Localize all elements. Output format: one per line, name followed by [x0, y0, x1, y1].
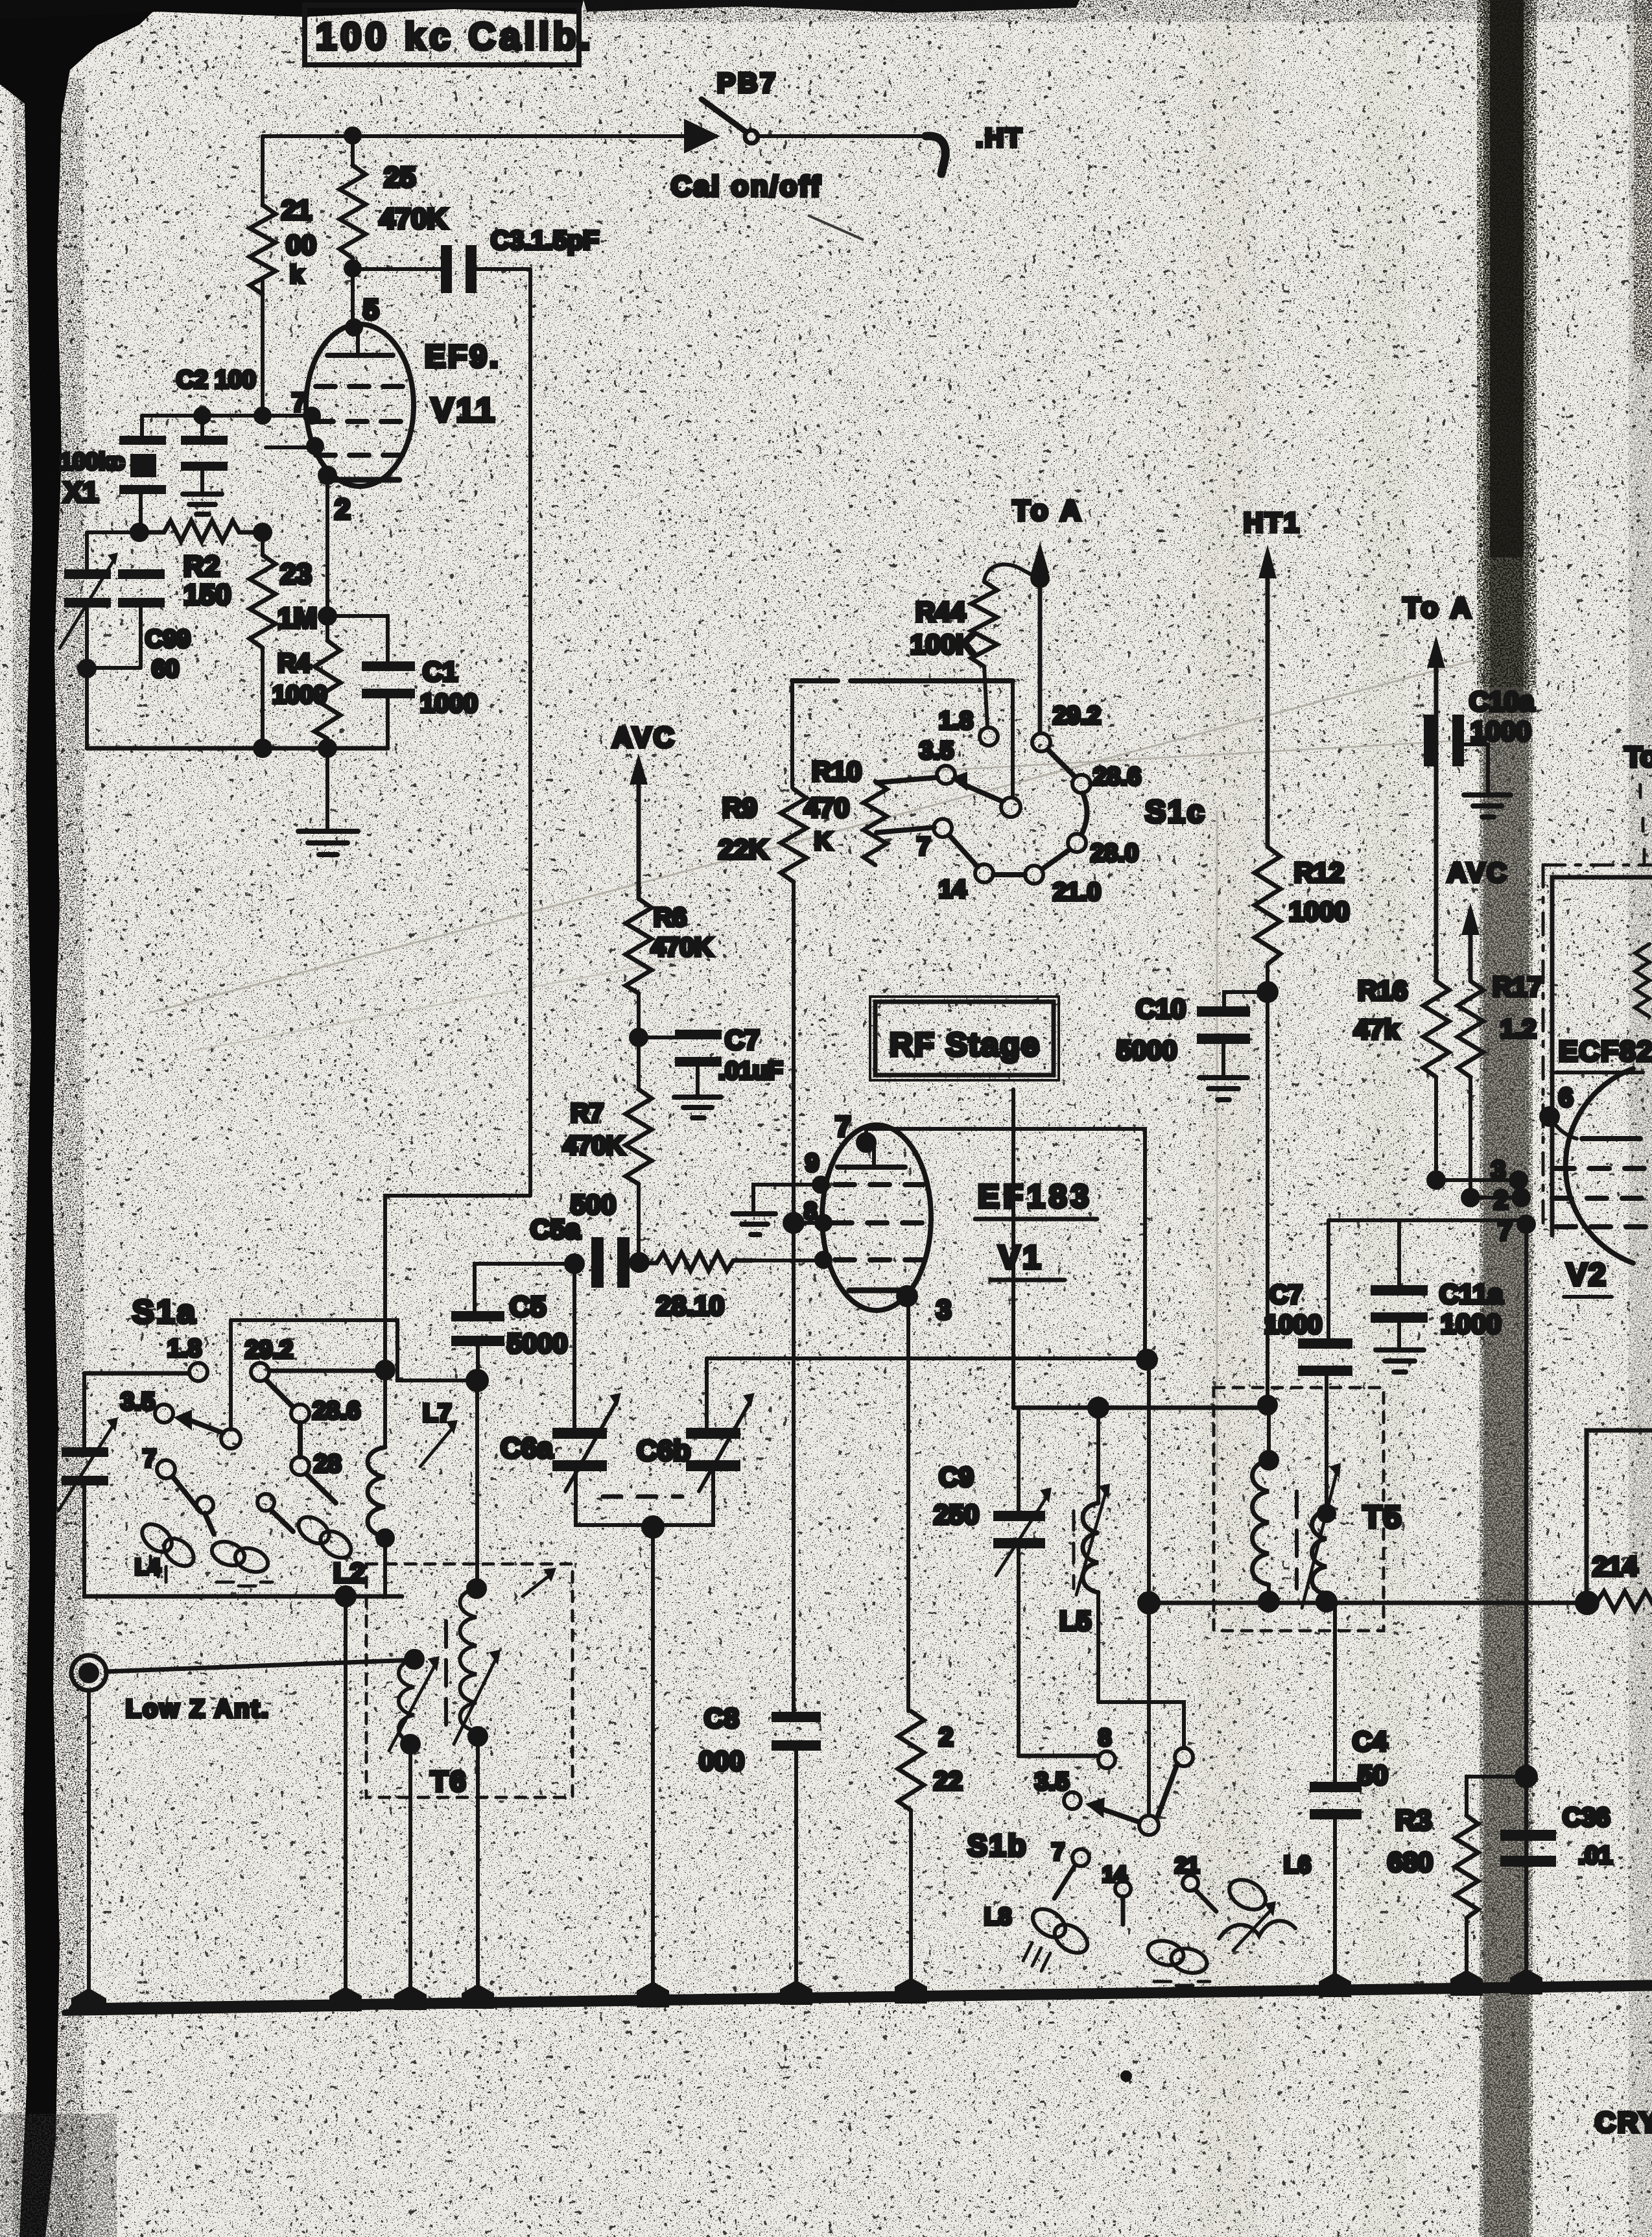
svg-text:5000: 5000 [507, 1328, 567, 1358]
svg-text:EF9.: EF9. [425, 340, 501, 374]
svg-text:29.2: 29.2 [245, 1336, 293, 1364]
svg-text:3.5: 3.5 [919, 737, 954, 764]
svg-text:R44: R44 [915, 597, 966, 627]
svg-text:100K: 100K [910, 629, 975, 659]
svg-text:28: 28 [314, 1450, 341, 1478]
svg-text:7: 7 [1052, 1838, 1065, 1865]
svg-text:C36: C36 [1563, 1803, 1610, 1832]
svg-text:C99: C99 [145, 626, 191, 653]
svg-text:T5: T5 [1363, 1500, 1403, 1535]
svg-text:C8: C8 [704, 1703, 739, 1733]
svg-text:L2: L2 [333, 1557, 365, 1588]
svg-text:RF Stage: RF Stage [890, 1026, 1041, 1063]
svg-text:60: 60 [152, 656, 179, 683]
svg-text:28.0: 28.0 [1091, 840, 1139, 867]
svg-text:29.2: 29.2 [1053, 702, 1101, 729]
svg-text:21: 21 [1175, 1853, 1199, 1878]
svg-text:Low Z Ant.: Low Z Ant. [126, 1696, 270, 1723]
svg-text:47k: 47k [1354, 1014, 1400, 1045]
svg-text:C6b: C6b [637, 1435, 690, 1467]
svg-text:V11: V11 [431, 392, 497, 429]
svg-text:R7: R7 [571, 1099, 604, 1128]
svg-text:8: 8 [1098, 1724, 1111, 1751]
svg-text:50: 50 [1358, 1760, 1388, 1790]
svg-text:470K: 470K [651, 933, 713, 962]
svg-text:S1a: S1a [132, 1294, 198, 1330]
svg-text:8: 8 [804, 1198, 817, 1224]
svg-text:00: 00 [286, 230, 316, 260]
svg-text:2: 2 [1494, 1186, 1508, 1214]
svg-text:1000: 1000 [420, 689, 478, 718]
svg-text:C10a: C10a [1469, 686, 1535, 716]
svg-text:T6: T6 [431, 1766, 467, 1797]
svg-text:23: 23 [280, 558, 312, 590]
svg-text:1M: 1M [277, 602, 317, 634]
svg-text:V1: V1 [998, 1239, 1043, 1275]
svg-text:EF183: EF183 [978, 1178, 1092, 1214]
svg-text:R2: R2 [183, 550, 220, 582]
svg-text:L8: L8 [984, 1903, 1011, 1930]
svg-text:1.8: 1.8 [939, 707, 973, 735]
svg-text:5000: 5000 [1116, 1035, 1177, 1065]
svg-text:PB7: PB7 [717, 67, 778, 98]
svg-text:R17: R17 [1493, 971, 1542, 1002]
svg-text:470K: 470K [379, 203, 447, 235]
svg-text:R4: R4 [277, 649, 311, 678]
svg-text:25: 25 [384, 161, 416, 193]
svg-text:HT1: HT1 [1244, 507, 1301, 538]
svg-text:R12: R12 [1294, 857, 1344, 888]
svg-text:150: 150 [183, 579, 231, 611]
svg-text:k: k [290, 261, 304, 289]
svg-text:28.10: 28.10 [656, 1290, 724, 1321]
svg-text:000: 000 [699, 1746, 744, 1776]
svg-text:.01: .01 [1578, 1842, 1612, 1869]
svg-text:1000: 1000 [1470, 716, 1531, 746]
svg-text:1000: 1000 [1264, 1310, 1322, 1339]
svg-text:7: 7 [143, 1445, 156, 1473]
svg-text:14: 14 [939, 876, 966, 903]
svg-text:6: 6 [1559, 1083, 1573, 1112]
svg-text:C1: C1 [423, 656, 458, 687]
svg-text:3.5: 3.5 [1035, 1768, 1069, 1795]
svg-text:28.6: 28.6 [313, 1397, 360, 1425]
svg-text:5: 5 [363, 294, 379, 325]
svg-text:680: 680 [1387, 1847, 1433, 1877]
svg-text:C11a: C11a [1439, 1279, 1504, 1309]
svg-text:CRY: CRY [1595, 2107, 1652, 2138]
svg-text:470K: 470K [563, 1131, 625, 1160]
svg-text:14: 14 [1102, 1862, 1127, 1887]
svg-text:S1c: S1c [1145, 795, 1206, 829]
svg-text:470: 470 [804, 792, 849, 823]
svg-text:L5: L5 [1059, 1605, 1091, 1636]
svg-text:21: 21 [281, 195, 312, 225]
svg-text:.01uF: .01uF [718, 1058, 783, 1085]
svg-text:R10: R10 [812, 756, 862, 787]
svg-text:To A: To A [1403, 592, 1474, 624]
svg-text:1000: 1000 [272, 681, 327, 709]
svg-text:C5a: C5a [530, 1214, 581, 1244]
svg-text:Cal on/off: Cal on/off [671, 171, 822, 202]
svg-text:ECF82: ECF82 [1559, 1036, 1652, 1067]
svg-text:S1b: S1b [967, 1829, 1028, 1862]
svg-text:R6: R6 [654, 903, 687, 932]
svg-text:C4: C4 [1352, 1726, 1387, 1757]
svg-text:21.0: 21.0 [1053, 879, 1101, 906]
svg-text:3.5: 3.5 [121, 1388, 155, 1415]
svg-text:C7: C7 [1269, 1281, 1303, 1309]
svg-text:L6: L6 [1284, 1851, 1311, 1878]
svg-text:1000: 1000 [1441, 1308, 1501, 1339]
svg-text:C9: C9 [939, 1462, 974, 1492]
svg-text:K: K [814, 828, 832, 855]
svg-text:To: To [1625, 741, 1652, 773]
svg-text:2: 2 [939, 1723, 953, 1751]
svg-text:22: 22 [934, 1767, 963, 1795]
svg-text:28.6: 28.6 [1093, 763, 1141, 790]
svg-text:C3.1.5pF: C3.1.5pF [491, 226, 599, 255]
svg-text:R9: R9 [722, 792, 757, 823]
svg-text:1000: 1000 [1289, 896, 1349, 927]
svg-text:C2 100: C2 100 [176, 366, 256, 394]
svg-text:100kc: 100kc [60, 448, 124, 475]
svg-text:AVC: AVC [612, 722, 676, 753]
svg-text:7: 7 [917, 833, 930, 860]
svg-text:1.2: 1.2 [1500, 1015, 1537, 1043]
svg-text:C10: C10 [1136, 993, 1186, 1024]
svg-text:.HT: .HT [976, 124, 1023, 152]
svg-text:3: 3 [936, 1294, 951, 1325]
svg-text:250: 250 [934, 1499, 979, 1530]
svg-text:22K: 22K [718, 834, 768, 864]
svg-text:AVC: AVC [1447, 857, 1509, 888]
svg-text:To A: To A [1013, 495, 1083, 527]
svg-text:X1: X1 [64, 477, 99, 508]
svg-text:C7: C7 [725, 1024, 760, 1055]
svg-text:7: 7 [835, 1111, 851, 1142]
svg-text:V2: V2 [1566, 1258, 1607, 1292]
svg-text:1.8: 1.8 [167, 1335, 202, 1362]
svg-text:R3: R3 [1395, 1805, 1432, 1836]
svg-text:C6a: C6a [501, 1432, 553, 1464]
svg-text:C5: C5 [510, 1291, 546, 1323]
svg-text:214: 214 [1592, 1551, 1638, 1581]
svg-text:9: 9 [805, 1150, 819, 1177]
svg-text:R16: R16 [1358, 975, 1408, 1006]
svg-text:100 kc Calib.: 100 kc Calib. [316, 16, 594, 58]
svg-text:2: 2 [335, 493, 350, 525]
